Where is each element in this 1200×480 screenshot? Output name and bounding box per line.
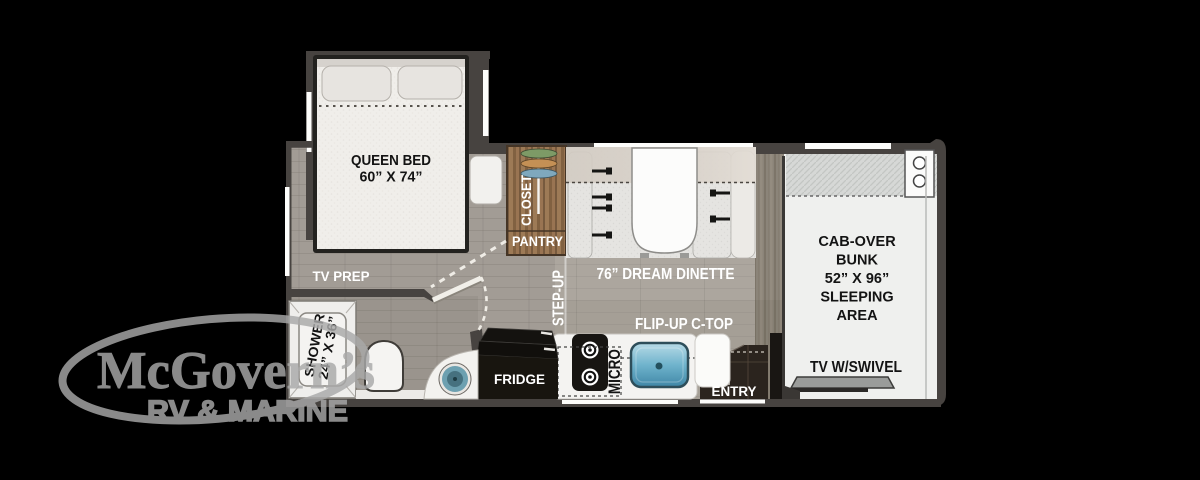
svg-text:FRIDGE: FRIDGE xyxy=(494,372,545,387)
svg-text:76” DREAM DINETTE: 76” DREAM DINETTE xyxy=(597,266,735,283)
svg-text:SLEEPING: SLEEPING xyxy=(820,290,893,306)
svg-text:FLIP-UP C-TOP: FLIP-UP C-TOP xyxy=(635,316,733,333)
svg-text:RV & MARINE: RV & MARINE xyxy=(147,395,348,428)
svg-text:QUEEN BED: QUEEN BED xyxy=(351,152,431,169)
svg-text:ENTRY: ENTRY xyxy=(712,384,757,399)
svg-text:60” X 74”: 60” X 74” xyxy=(360,169,423,186)
svg-text:PANTRY: PANTRY xyxy=(512,234,563,249)
svg-text:CAB-OVER: CAB-OVER xyxy=(818,234,896,250)
svg-text:BUNK: BUNK xyxy=(836,253,878,269)
svg-text:McGovern’s: McGovern’s xyxy=(97,342,375,400)
svg-text:52” X 96”: 52” X 96” xyxy=(825,271,890,287)
svg-text:STEP-UP: STEP-UP xyxy=(551,270,568,326)
svg-text:AREA: AREA xyxy=(836,308,878,324)
svg-text:TV W/SWIVEL: TV W/SWIVEL xyxy=(810,359,902,376)
svg-text:CLOSET: CLOSET xyxy=(519,174,534,226)
svg-text:TV PREP: TV PREP xyxy=(313,269,370,284)
